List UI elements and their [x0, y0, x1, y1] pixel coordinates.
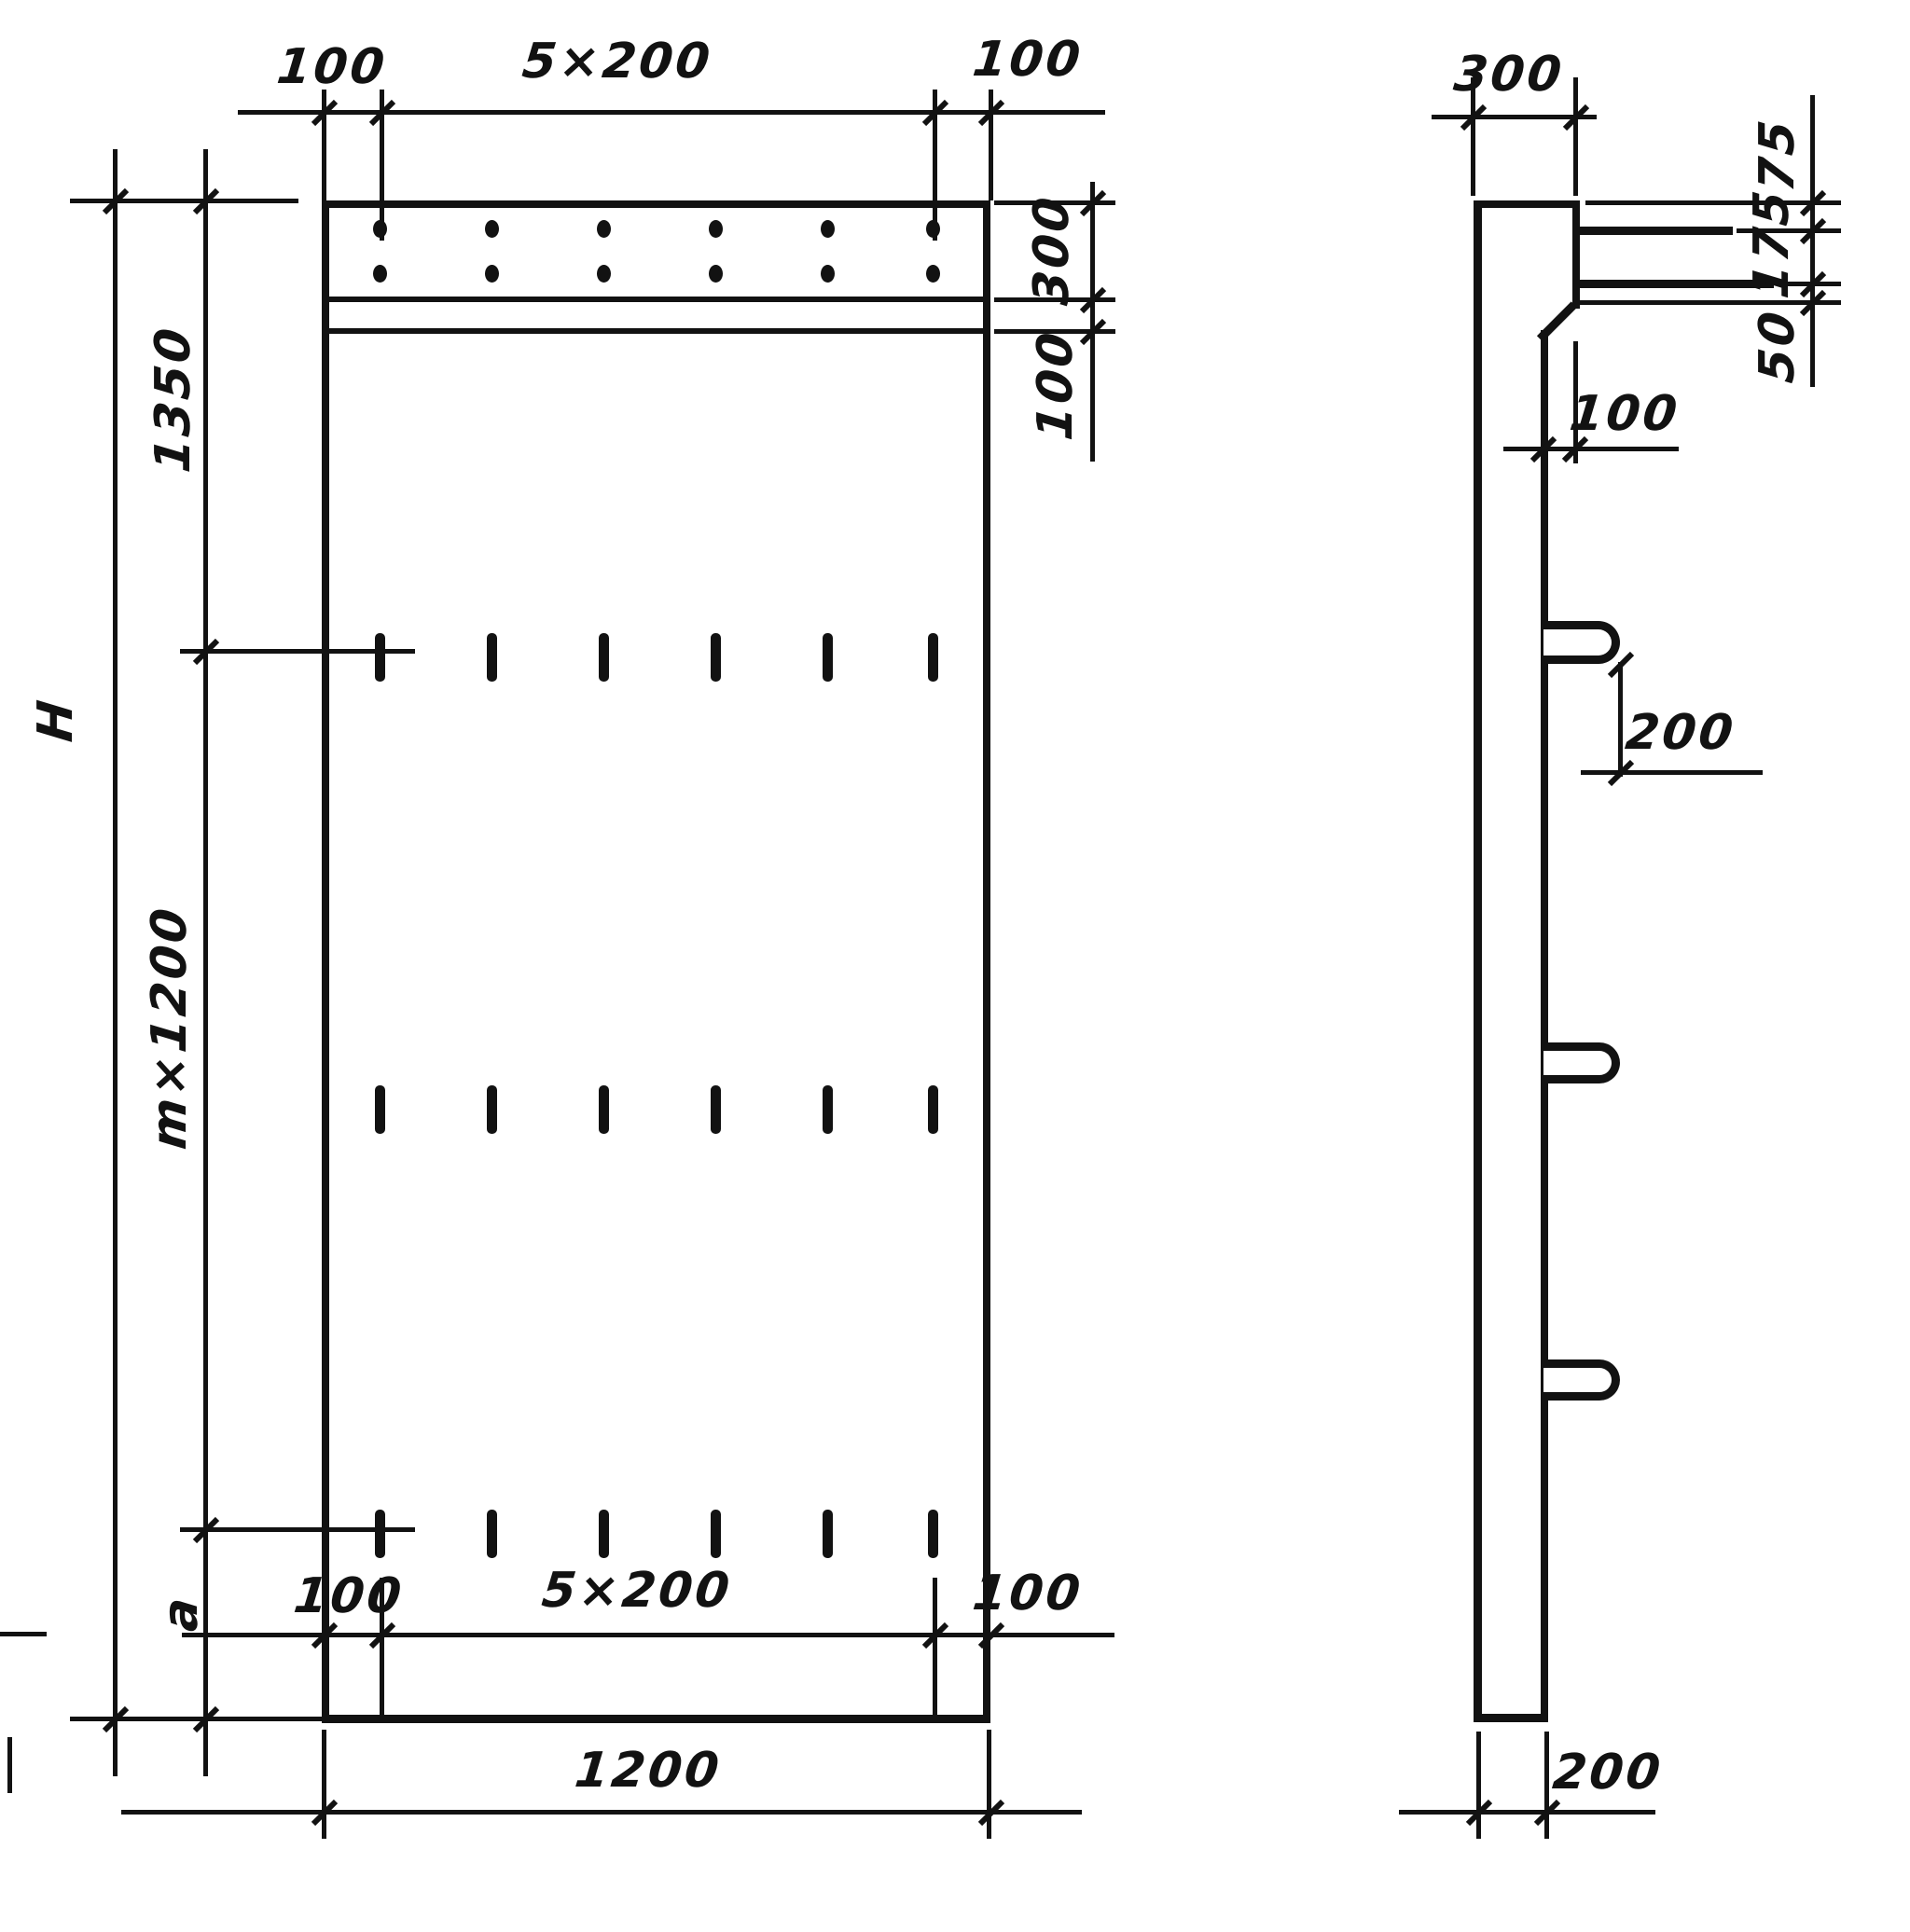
dimension-line	[1503, 447, 1679, 451]
bar-mark	[375, 633, 385, 682]
hole-dot	[485, 220, 499, 238]
dim-label-band-height: 300	[1024, 192, 1080, 308]
extension-line	[1544, 1732, 1549, 1839]
profile-edge-right	[1541, 330, 1548, 1722]
extension-line	[933, 1578, 937, 1716]
rebar-loop	[1543, 1042, 1620, 1083]
dim-label-bottom-left: 100	[291, 1568, 407, 1624]
bar-mark	[375, 1085, 385, 1134]
extension-line	[1585, 200, 1841, 205]
hole-dot	[373, 265, 387, 283]
top-bar-1	[1580, 227, 1733, 235]
dimension-line	[121, 1810, 1082, 1815]
dim-label-bar-spacing: 175	[1744, 186, 1800, 301]
band-line-2	[322, 328, 990, 334]
bar-mark	[711, 1510, 721, 1558]
bar-mark	[711, 1085, 721, 1134]
rebar-loop	[1543, 1359, 1620, 1401]
dim-label-middle-segment: m×1200	[142, 904, 198, 1152]
dim-label-thickness-bottom: 200	[1550, 1745, 1666, 1801]
extension-line	[987, 1730, 991, 1839]
dim-label-bar-offset-1: 75	[1750, 116, 1806, 195]
bar-mark	[711, 633, 721, 682]
dim-label-top-segment: 1350	[145, 323, 201, 475]
extension-line	[1476, 1732, 1481, 1839]
panel-edge-bottom	[322, 1715, 990, 1723]
panel-edge-left	[322, 200, 329, 1722]
bar-mark	[928, 1085, 938, 1134]
bar-mark	[599, 1510, 609, 1558]
panel-edge-top	[322, 200, 990, 208]
margin-stub	[7, 1737, 12, 1793]
bar-mark	[823, 1085, 833, 1134]
dim-label-strip-height: 100	[1028, 327, 1084, 443]
band-line-1	[322, 297, 990, 302]
bar-mark	[823, 633, 833, 682]
extension-line	[70, 1717, 322, 1721]
extension-line	[180, 649, 415, 654]
dim-label-loop-spacing: 200	[1623, 705, 1738, 761]
hole-dot	[709, 220, 723, 238]
profile-band-right	[1572, 200, 1580, 309]
dimension-line	[238, 110, 1105, 115]
bar-mark	[487, 633, 497, 682]
dimension-line	[1810, 95, 1815, 387]
bar-mark	[599, 633, 609, 682]
extension-line	[70, 199, 298, 203]
bar-mark	[823, 1510, 833, 1558]
hole-dot	[597, 265, 611, 283]
extension-line	[180, 1527, 415, 1532]
dim-label-bottom-center: 5×200	[539, 1563, 735, 1619]
bar-mark	[375, 1510, 385, 1558]
hole-dot	[821, 265, 835, 283]
bar-mark	[487, 1085, 497, 1134]
extension-line	[1580, 300, 1841, 305]
dimension-line	[113, 149, 118, 1776]
extension-line	[1581, 770, 1763, 775]
dim-label-overall-width: 1200	[572, 1743, 724, 1799]
rebar-loop	[1543, 621, 1620, 664]
hole-dot	[709, 265, 723, 283]
dim-label-top-left: 100	[274, 39, 390, 95]
extension-line	[322, 1730, 326, 1839]
dim-label-thickness-top: 300	[1451, 47, 1567, 103]
bar-mark	[928, 1510, 938, 1558]
dim-label-ledge-offset: 100	[1567, 386, 1682, 442]
bar-mark	[487, 1510, 497, 1558]
margin-stub	[0, 1632, 47, 1636]
hole-dot	[926, 265, 940, 283]
dim-label-bottom-segment: a	[153, 1593, 209, 1634]
extension-line	[1573, 77, 1578, 196]
profile-edge-bottom	[1474, 1714, 1548, 1722]
panel-edge-right	[983, 200, 990, 1722]
drawing-canvas: 100 5×200 100 300 100 H 1350 m×1200 a	[0, 0, 1910, 1932]
dimension-line	[1399, 1810, 1655, 1815]
dim-label-overall-height: H	[28, 696, 84, 745]
dim-label-bar-offset-2: 50	[1750, 307, 1806, 386]
bar-mark	[599, 1085, 609, 1134]
profile-edge-top	[1474, 200, 1580, 208]
dim-label-top-right: 100	[970, 32, 1086, 88]
dim-label-top-center: 5×200	[519, 34, 715, 90]
dimension-line	[1090, 182, 1095, 462]
dim-label-bottom-right: 100	[970, 1566, 1086, 1621]
hole-dot	[821, 220, 835, 238]
hole-dot	[597, 220, 611, 238]
hole-dot	[485, 265, 499, 283]
bar-mark	[928, 633, 938, 682]
profile-edge-left	[1474, 200, 1482, 1722]
